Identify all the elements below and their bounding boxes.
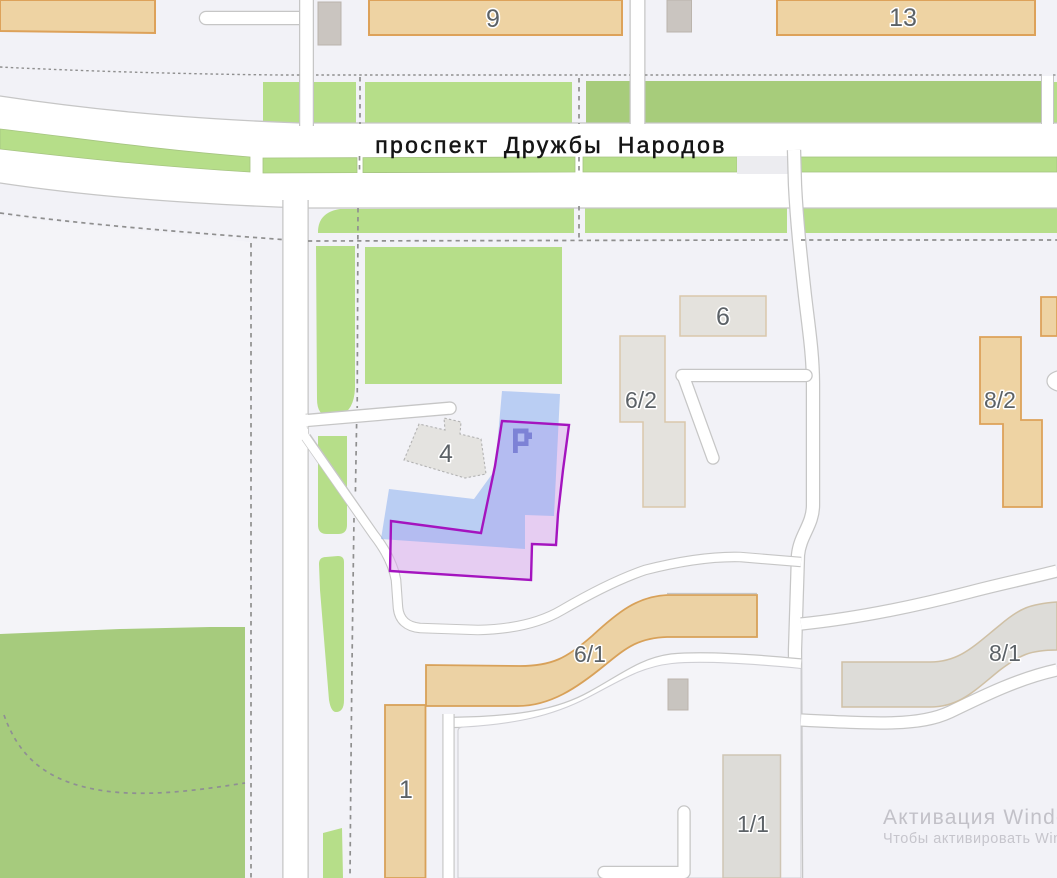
svg-text:Активация Windows: Активация Windows	[883, 806, 1057, 829]
svg-text:4: 4	[439, 440, 453, 468]
svg-text:проспект Дружбы Народов: проспект Дружбы Народов	[375, 132, 726, 158]
svg-text:6/2: 6/2	[625, 387, 657, 413]
svg-text:8/2: 8/2	[984, 387, 1016, 413]
svg-text:9: 9	[486, 5, 500, 33]
svg-text:8/1: 8/1	[989, 640, 1021, 666]
svg-text:1: 1	[399, 776, 413, 804]
svg-text:6/1: 6/1	[574, 641, 606, 667]
svg-text:6: 6	[716, 303, 730, 331]
svg-text:Чтобы активировать Win: Чтобы активировать Win	[883, 831, 1057, 847]
svg-text:1/1: 1/1	[737, 811, 769, 837]
svg-text:13: 13	[889, 4, 917, 32]
